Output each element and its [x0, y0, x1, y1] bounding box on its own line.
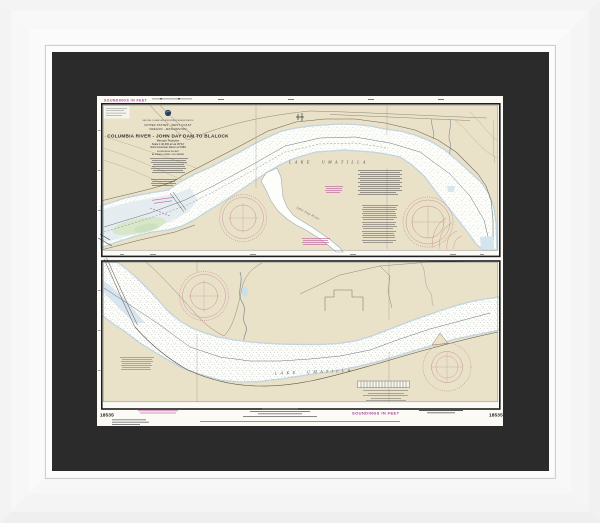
- svg-text:SOUNDINGS IN FEET: SOUNDINGS IN FEET: [352, 411, 400, 416]
- svg-text:18535: 18535: [100, 413, 114, 419]
- svg-text:SOUNDINGS IN FEET: SOUNDINGS IN FEET: [104, 98, 148, 102]
- svg-text:SOUNDINGS IN FEET: SOUNDINGS IN FEET: [157, 151, 180, 153]
- svg-text:AT MEAN LOWER LOW WATER: AT MEAN LOWER LOW WATER: [152, 153, 184, 156]
- svg-text:North American Datum of 1983: North American Datum of 1983: [150, 145, 186, 149]
- svg-text:UNITED STATES - WEST COAST: UNITED STATES - WEST COAST: [144, 123, 191, 127]
- svg-text:NATIONAL OCEANIC AND ATMOSPHER: NATIONAL OCEANIC AND ATMOSPHERIC ADMINIS…: [143, 119, 194, 122]
- svg-text:LAKE UMATILLA: LAKE UMATILLA: [288, 160, 369, 165]
- svg-text:OREGON - WASHINGTON: OREGON - WASHINGTON: [149, 127, 186, 131]
- svg-text:18535: 18535: [489, 413, 503, 419]
- svg-text:COLUMBIA RIVER - JOHN DAY DAM: COLUMBIA RIVER - JOHN DAY DAM TO BLALOCK: [107, 134, 229, 139]
